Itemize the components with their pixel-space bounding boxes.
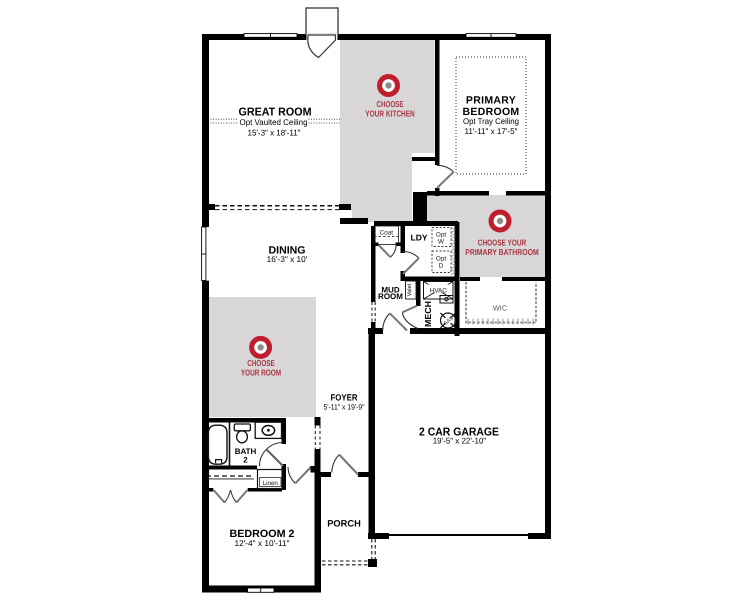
- svg-text:ROOM: ROOM: [378, 292, 403, 301]
- svg-text:D: D: [439, 263, 444, 270]
- svg-text:HVAC: HVAC: [430, 288, 447, 295]
- svg-text:LDY: LDY: [411, 233, 428, 243]
- svg-text:Linen: Linen: [263, 480, 279, 487]
- svg-text:Opt: Opt: [436, 232, 446, 239]
- svg-text:W: W: [438, 239, 444, 246]
- svg-text:YOUR KITCHEN: YOUR KITCHEN: [365, 108, 415, 118]
- svg-text:5'-11" x 19'-9": 5'-11" x 19'-9": [324, 402, 365, 411]
- svg-text:Opt Vaulted Ceiling: Opt Vaulted Ceiling: [240, 117, 308, 127]
- svg-text:Coat: Coat: [380, 229, 394, 236]
- svg-text:2: 2: [243, 455, 248, 464]
- svg-text:WIC: WIC: [493, 304, 507, 313]
- svg-text:11'-11" x 17'-5": 11'-11" x 17'-5": [465, 126, 518, 136]
- svg-text:FOYER: FOYER: [331, 392, 358, 402]
- svg-text:16'-3" x 10': 16'-3" x 10': [267, 254, 308, 264]
- svg-text:MECH: MECH: [423, 301, 433, 327]
- svg-text:12'-4" x 10'-11": 12'-4" x 10'-11": [234, 538, 289, 548]
- svg-text:CHOOSE YOUR: CHOOSE YOUR: [478, 237, 527, 247]
- svg-text:PRIMARY BATHROOM: PRIMARY BATHROOM: [465, 247, 538, 257]
- svg-text:Opt: Opt: [436, 256, 446, 263]
- svg-text:15'-3" x 18'-11": 15'-3" x 18'-11": [248, 127, 301, 137]
- svg-text:Opt Tray Ceiling: Opt Tray Ceiling: [463, 116, 519, 126]
- svg-text:PRIMARY: PRIMARY: [466, 95, 516, 107]
- svg-text:Valet: Valet: [406, 283, 413, 296]
- svg-text:YOUR ROOM: YOUR ROOM: [241, 367, 281, 377]
- svg-text:PORCH: PORCH: [327, 519, 361, 529]
- svg-text:19'-5" x 22'-10": 19'-5" x 22'-10": [433, 436, 487, 446]
